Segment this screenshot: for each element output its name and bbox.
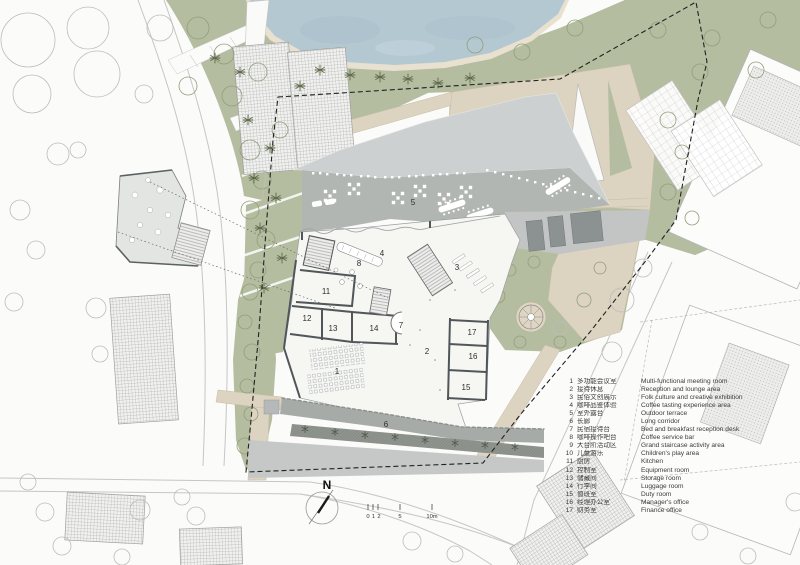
legend-row: 4 咖啡品鉴体验 Coffee tasting experience area bbox=[562, 402, 798, 410]
legend-item-english: Equipment room bbox=[641, 467, 798, 475]
legend-item-english: Storage room bbox=[641, 475, 798, 483]
legend-item-number: 8 bbox=[562, 434, 573, 442]
legend-item-chinese: 储藏间 bbox=[577, 475, 641, 483]
legend-item-number: 13 bbox=[562, 475, 573, 483]
legend-item-english: Kitchen bbox=[641, 458, 798, 466]
room-label-8: 8 bbox=[357, 259, 362, 268]
room-label-2: 2 bbox=[425, 347, 430, 356]
room-label-16: 16 bbox=[469, 352, 478, 361]
room-label-7: 7 bbox=[399, 321, 404, 330]
north-label: N bbox=[323, 478, 332, 492]
legend-row: 17 财务室 Finance office bbox=[562, 507, 798, 515]
legend-item-number: 17 bbox=[562, 507, 573, 515]
legend-item-chinese: 财务室 bbox=[577, 507, 641, 515]
room-label-6: 6 bbox=[384, 420, 389, 429]
room-label-15: 15 bbox=[462, 383, 471, 392]
legend-item-number: 10 bbox=[562, 450, 573, 458]
scale-label-10m: 10m bbox=[426, 514, 437, 520]
legend-item-english: Coffee tasting experience area bbox=[641, 402, 798, 410]
legend-item-number: 16 bbox=[562, 499, 573, 507]
legend-item-chinese: 咖啡品鉴体验 bbox=[577, 402, 641, 410]
legend-item-english: Outdoor terrace bbox=[641, 410, 798, 418]
legend-item-english: Reception and lounge area bbox=[641, 386, 798, 394]
legend-row: 9 大台阶活动区 Grand staircase activity area bbox=[562, 442, 798, 450]
legend-row: 13 储藏间 Storage room bbox=[562, 475, 798, 483]
legend-row: 2 接待休息 Reception and lounge area bbox=[562, 386, 798, 394]
legend-row: 3 民俗文创展示 Folk culture and creative exhib… bbox=[562, 394, 798, 402]
room-label-17: 17 bbox=[468, 328, 477, 337]
legend-row: 7 民宿接待台 Bed and breakfast reception desk bbox=[562, 426, 798, 434]
legend-item-english: Children's play area bbox=[641, 450, 798, 458]
legend-row: 12 控制室 Equipment room bbox=[562, 467, 798, 475]
legend-item-english: Duty room bbox=[641, 491, 798, 499]
scale-label-5: 5 bbox=[398, 514, 401, 520]
legend-item-english: Multi-functional meeting room bbox=[641, 378, 798, 386]
legend-row: 1 多功能会议室 Multi-functional meeting room bbox=[562, 378, 798, 386]
room-label-13: 13 bbox=[329, 324, 338, 333]
legend-row: 11 厨房 Kitchen bbox=[562, 458, 798, 466]
legend-item-chinese: 接待休息 bbox=[577, 386, 641, 394]
room-label-3: 3 bbox=[455, 263, 460, 272]
legend-item-english: Long corridor bbox=[641, 418, 798, 426]
legend-item-chinese: 民俗文创展示 bbox=[577, 394, 641, 402]
room-label-1: 1 bbox=[335, 367, 340, 376]
legend-row: 10 儿童游乐 Children's play area bbox=[562, 450, 798, 458]
legend-item-number: 1 bbox=[562, 378, 573, 386]
legend-item-chinese: 行李间 bbox=[577, 483, 641, 491]
room-label-14: 14 bbox=[370, 324, 379, 333]
legend-item-english: Finance office bbox=[641, 507, 798, 515]
legend: 1 多功能会议室 Multi-functional meeting room 2… bbox=[562, 378, 798, 515]
legend-item-chinese: 大台阶活动区 bbox=[577, 442, 641, 450]
legend-row: 8 咖啡操作吧台 Coffee service bar bbox=[562, 434, 798, 442]
legend-item-chinese: 咖啡操作吧台 bbox=[577, 434, 641, 442]
play-platform bbox=[116, 170, 210, 266]
legend-item-number: 14 bbox=[562, 483, 573, 491]
legend-item-english: Grand staircase activity area bbox=[641, 442, 798, 450]
spiral-stair bbox=[516, 302, 546, 332]
legend-item-english: Folk culture and creative exhibition bbox=[641, 394, 798, 402]
legend-item-chinese: 儿童游乐 bbox=[577, 450, 641, 458]
legend-item-chinese: 厨房 bbox=[577, 458, 641, 466]
legend-item-english: Manager's office bbox=[641, 499, 798, 507]
legend-item-chinese: 值班室 bbox=[577, 491, 641, 499]
legend-item-number: 5 bbox=[562, 410, 573, 418]
legend-item-number: 12 bbox=[562, 467, 573, 475]
legend-item-chinese: 经理办公室 bbox=[577, 499, 641, 507]
legend-item-number: 2 bbox=[562, 386, 573, 394]
legend-item-english: Bed and breakfast reception desk bbox=[641, 426, 798, 434]
room-label-5: 5 bbox=[411, 198, 416, 207]
scale-label-2: 2 bbox=[377, 514, 380, 520]
legend-row: 6 长廊 Long corridor bbox=[562, 418, 798, 426]
room-label-12: 12 bbox=[303, 314, 312, 323]
legend-item-number: 15 bbox=[562, 491, 573, 499]
legend-item-chinese: 控制室 bbox=[577, 467, 641, 475]
legend-item-english: Coffee service bar bbox=[641, 434, 798, 442]
room-label-11: 11 bbox=[322, 287, 331, 296]
legend-item-english: Luggage room bbox=[641, 483, 798, 491]
legend-item-chinese: 民宿接待台 bbox=[577, 426, 641, 434]
legend-item-number: 6 bbox=[562, 418, 573, 426]
legend-row: 15 值班室 Duty room bbox=[562, 491, 798, 499]
legend-row: 14 行李间 Luggage room bbox=[562, 483, 798, 491]
scale-label-0: 0 bbox=[366, 514, 369, 520]
legend-item-number: 4 bbox=[562, 402, 573, 410]
legend-item-number: 11 bbox=[562, 458, 573, 466]
legend-row: 16 经理办公室 Manager's office bbox=[562, 499, 798, 507]
room-label-4: 4 bbox=[380, 249, 385, 258]
legend-item-number: 3 bbox=[562, 394, 573, 402]
legend-item-number: 7 bbox=[562, 426, 573, 434]
scale-label-1: 1 bbox=[372, 514, 375, 520]
legend-row: 5 室外露台 Outdoor terrace bbox=[562, 410, 798, 418]
legend-item-chinese: 长廊 bbox=[577, 418, 641, 426]
legend-item-chinese: 室外露台 bbox=[577, 410, 641, 418]
legend-item-number: 9 bbox=[562, 442, 573, 450]
legend-item-chinese: 多功能会议室 bbox=[577, 378, 641, 386]
site-plan-canvas: 1 2 3 4 5 6 7 8 11 12 13 14 15 16 17 N 0… bbox=[0, 0, 800, 565]
